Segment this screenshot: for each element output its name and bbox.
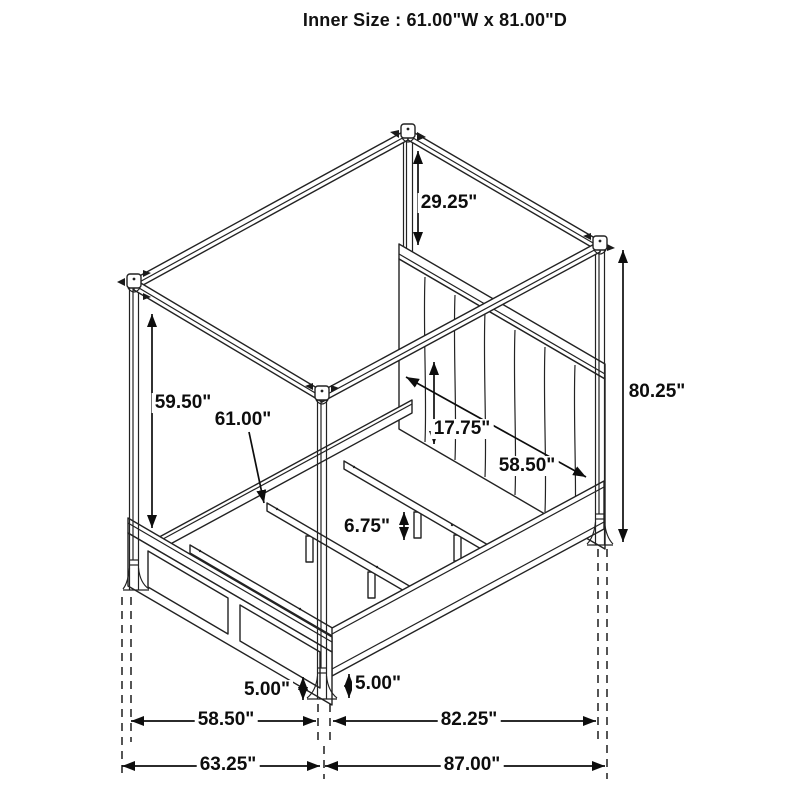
dim-label-footboard-span: 58.50" — [195, 710, 258, 730]
dim-label-side-span: 82.25" — [438, 710, 501, 730]
back-post — [404, 140, 413, 256]
dim-label-underrail-clearance: 59.50" — [152, 393, 215, 413]
dim-label-slat-leg-height: 6.75" — [341, 517, 393, 537]
dim-label-post-height: 80.25" — [626, 382, 689, 402]
dim-label-overall-width: 63.25" — [197, 755, 260, 775]
dim-label-foot-height-left: 5.00" — [241, 680, 293, 700]
dim-label-overall-depth: 87.00" — [441, 755, 504, 775]
bed-structure — [117, 124, 615, 705]
dim-label-headboard-panel-height: 17.75" — [431, 419, 494, 439]
dim-label-headboard-width: 58.50" — [496, 456, 559, 476]
dim-label-canopy-clearance: 29.25" — [418, 193, 481, 213]
diagram-page: Inner Size : 61.00"W x 81.00"D — [0, 0, 800, 800]
dim-label-foot-height-right: 5.00" — [352, 674, 404, 694]
dim-label-inner-width: 61.00" — [212, 410, 275, 430]
